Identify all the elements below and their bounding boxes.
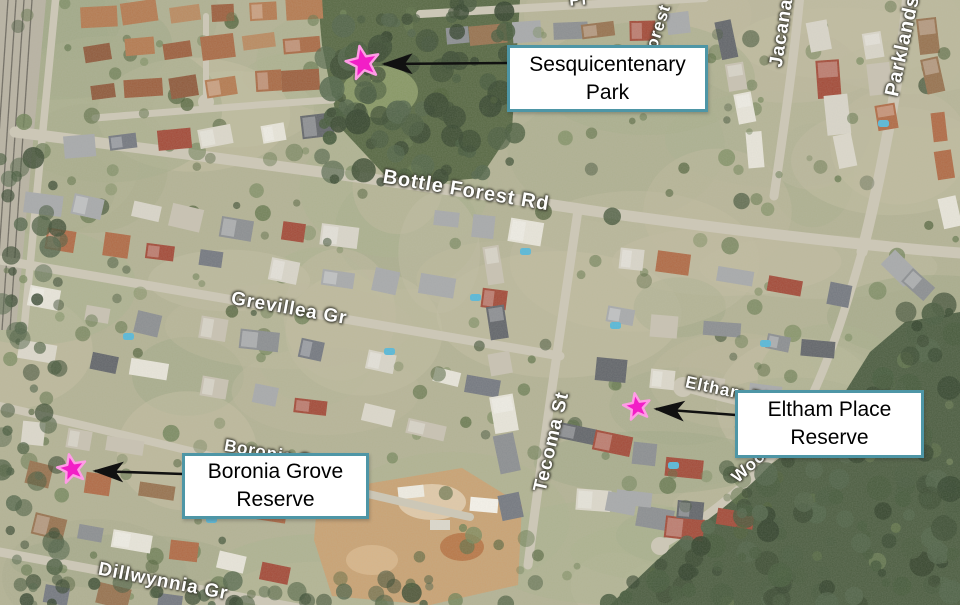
callout-text-line: Eltham Place [768, 396, 892, 424]
callout-text-line: Reserve [236, 486, 314, 514]
callout-sesquicentenary-park: Sesquicentenary Park [507, 45, 708, 112]
callout-text-line: Park [586, 79, 629, 107]
callout-eltham-place-reserve: Eltham Place Reserve [735, 390, 924, 458]
callout-text-line: Sesquicentenary [529, 51, 685, 79]
aerial-map: Bottle Forest Rd Grevillea Gr Tecoma St … [0, 0, 960, 605]
callout-text-line: Reserve [790, 424, 868, 452]
map-background [0, 0, 960, 605]
callout-boronia-grove-reserve: Boronia Grove Reserve [182, 453, 369, 519]
callout-text-line: Boronia Grove [208, 458, 343, 486]
street-label-pl-partial: Pl [568, 0, 587, 11]
